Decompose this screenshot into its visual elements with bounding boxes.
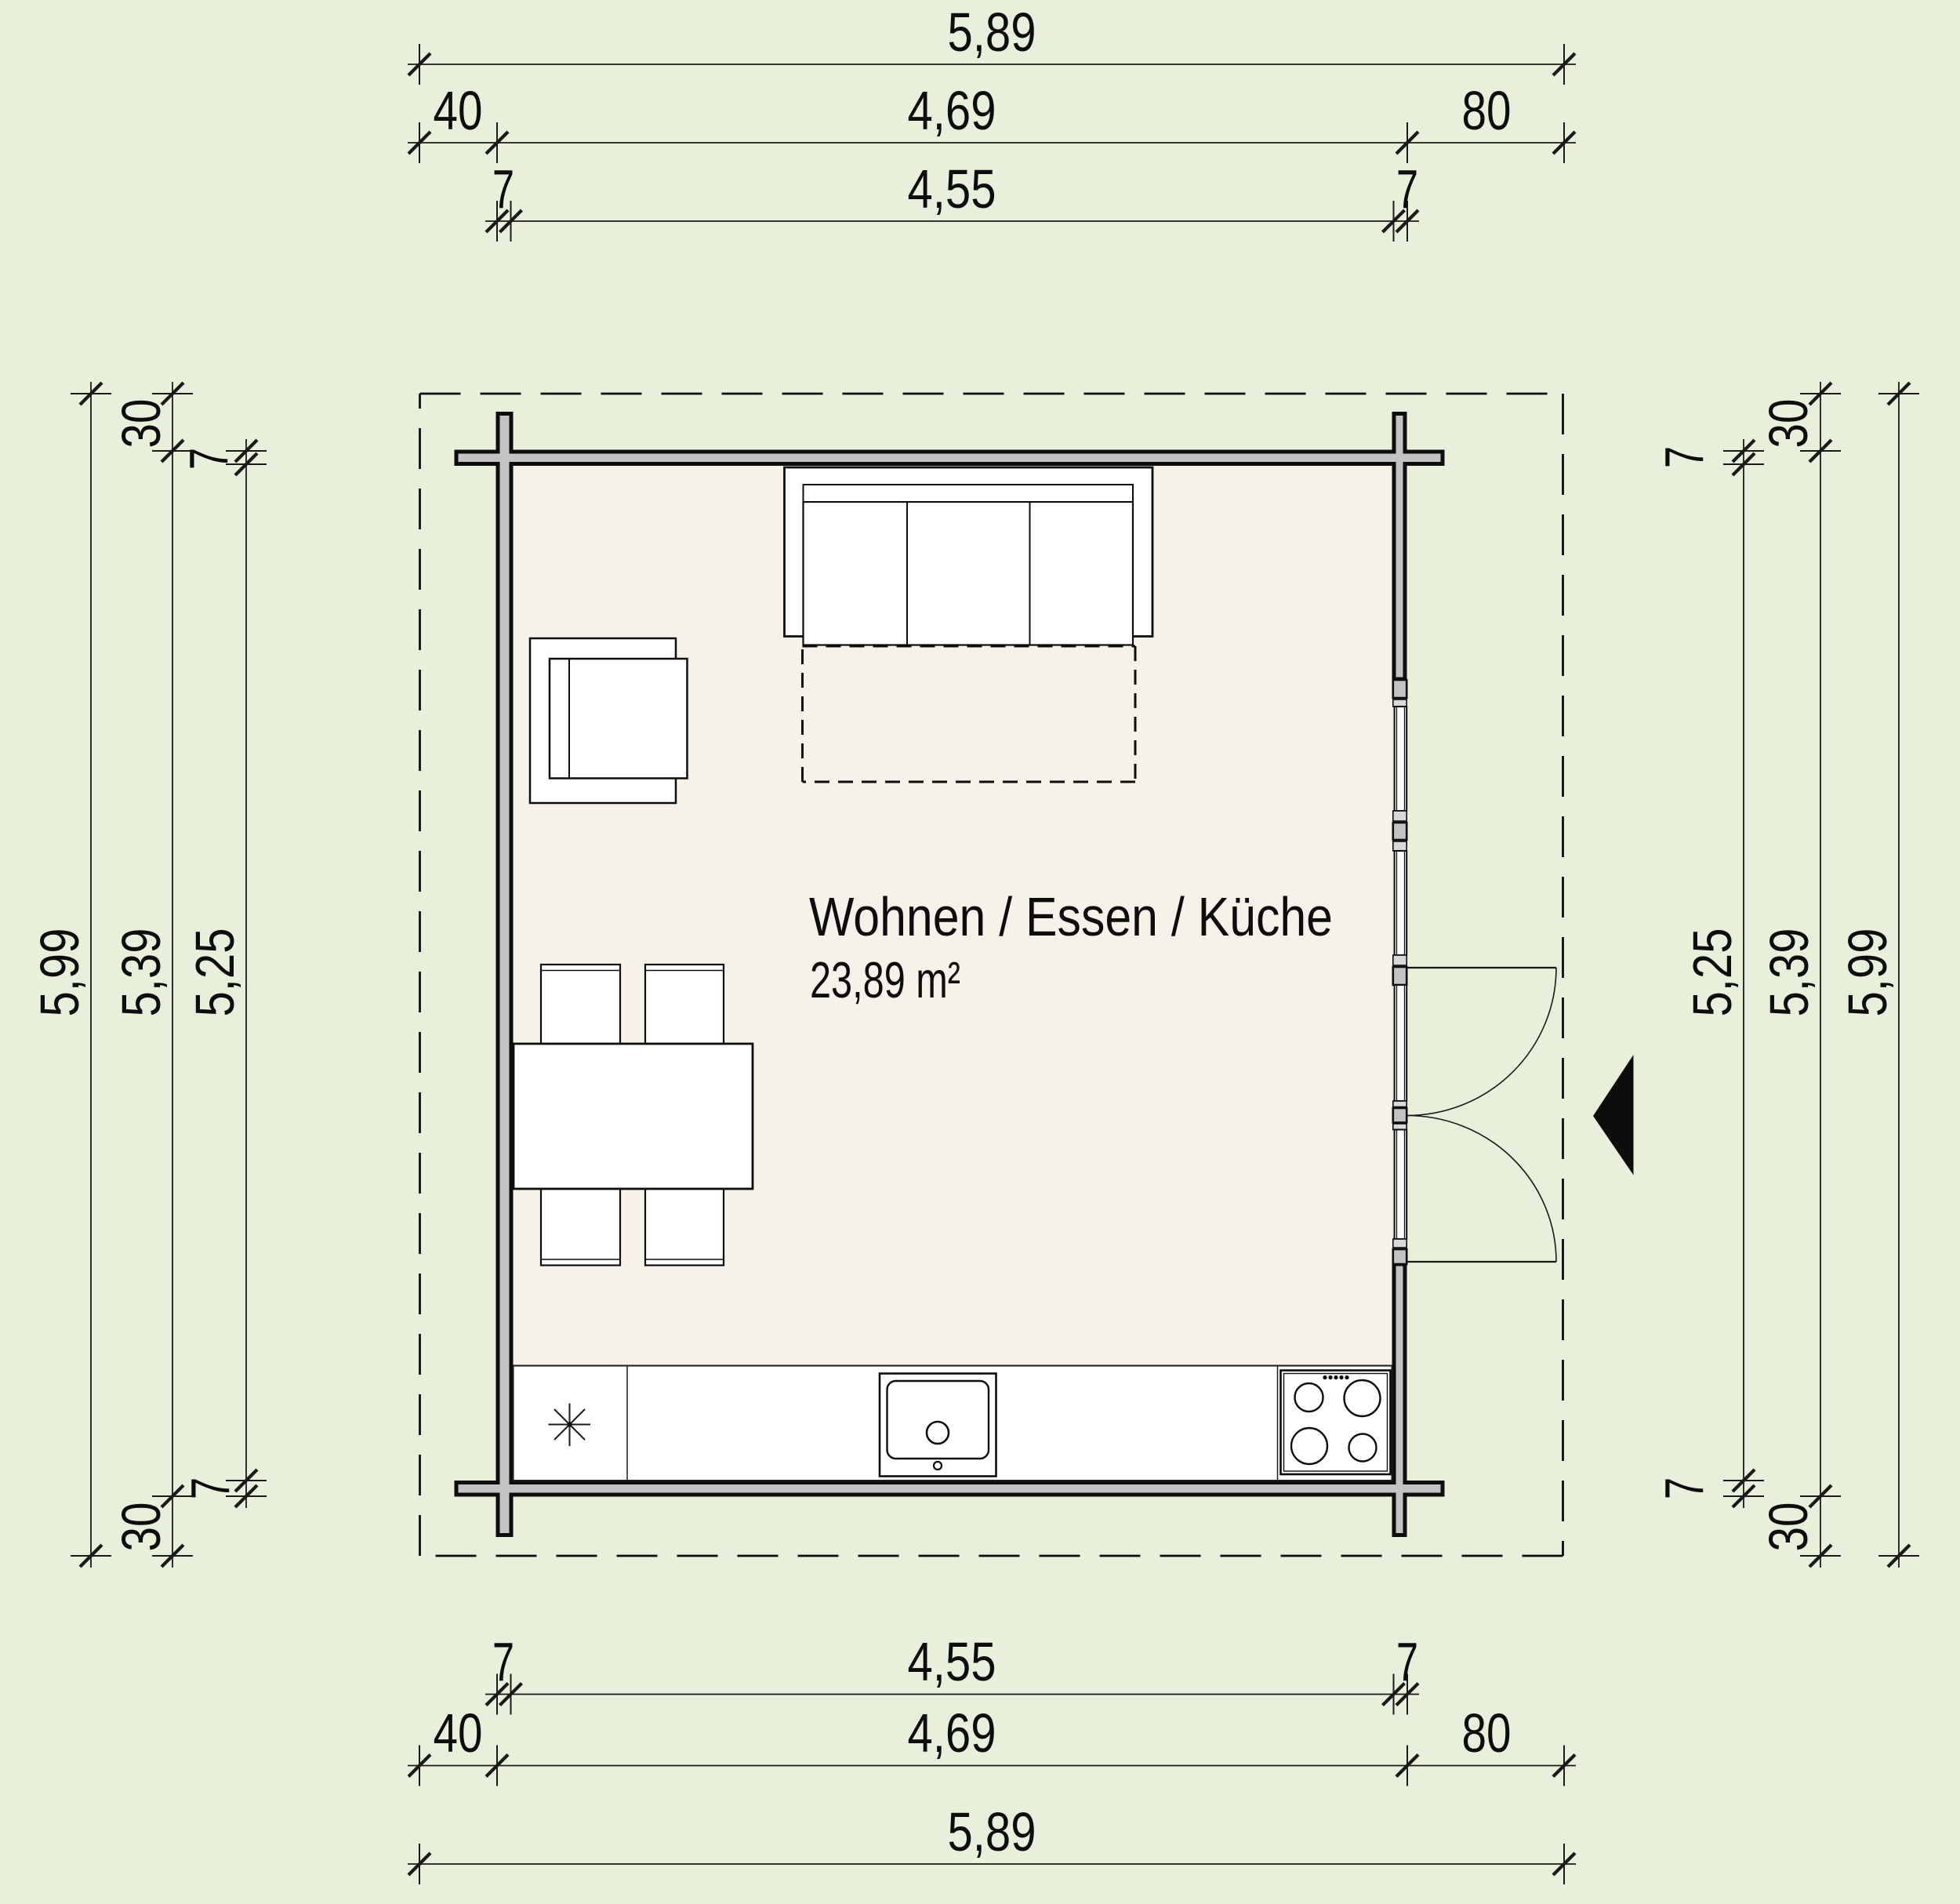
svg-text:30: 30 xyxy=(111,1502,172,1552)
svg-text:30: 30 xyxy=(111,399,172,449)
svg-text:5,99: 5,99 xyxy=(29,928,90,1017)
svg-text:23,89 m²: 23,89 m² xyxy=(810,951,960,1008)
svg-text:5,39: 5,39 xyxy=(111,928,172,1017)
svg-text:7: 7 xyxy=(492,158,514,220)
svg-text:30: 30 xyxy=(1758,1502,1819,1552)
svg-text:7: 7 xyxy=(1653,446,1715,468)
svg-text:5,25: 5,25 xyxy=(184,928,245,1017)
svg-text:80: 80 xyxy=(1462,80,1512,141)
svg-text:7: 7 xyxy=(178,448,239,470)
svg-text:7: 7 xyxy=(492,1631,514,1692)
svg-text:4,69: 4,69 xyxy=(908,1702,996,1764)
svg-text:5,99: 5,99 xyxy=(1837,928,1898,1017)
svg-text:4,69: 4,69 xyxy=(908,80,996,141)
svg-text:40: 40 xyxy=(434,1702,483,1764)
svg-text:4,55: 4,55 xyxy=(908,158,996,220)
svg-text:Wohnen / Essen / Küche: Wohnen / Essen / Küche xyxy=(809,886,1333,947)
svg-text:4,55: 4,55 xyxy=(908,1631,996,1692)
svg-text:5,25: 5,25 xyxy=(1682,928,1743,1017)
svg-text:5,39: 5,39 xyxy=(1759,928,1820,1017)
svg-text:7: 7 xyxy=(180,1477,241,1499)
svg-text:5,89: 5,89 xyxy=(948,2,1036,63)
svg-text:30: 30 xyxy=(1758,399,1819,449)
svg-text:5,89: 5,89 xyxy=(948,1801,1036,1862)
svg-text:80: 80 xyxy=(1462,1702,1512,1764)
svg-text:7: 7 xyxy=(1396,1631,1418,1692)
svg-text:7: 7 xyxy=(1653,1477,1715,1499)
svg-text:7: 7 xyxy=(1396,158,1418,220)
svg-text:40: 40 xyxy=(434,80,483,141)
